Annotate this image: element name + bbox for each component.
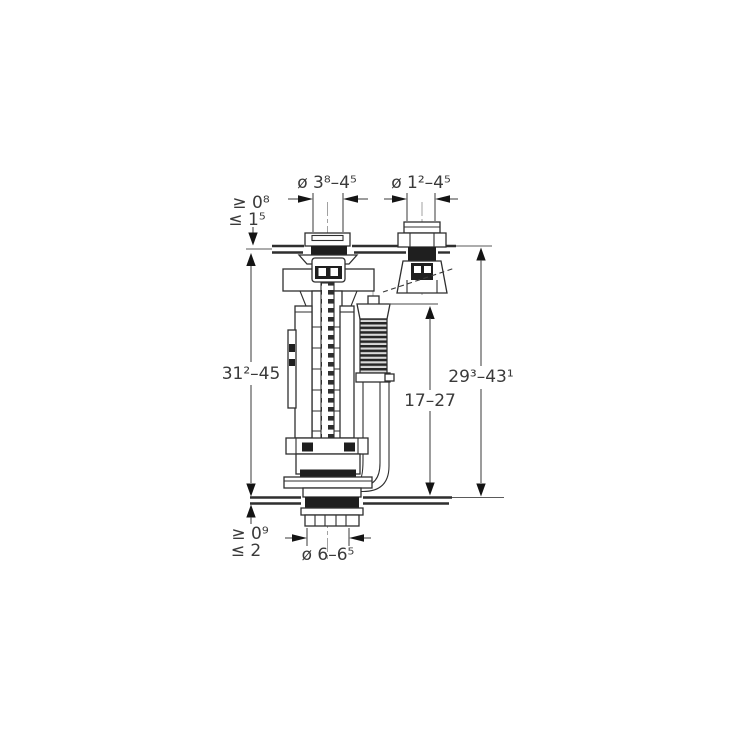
fill-valve-cap-base bbox=[398, 233, 446, 247]
fill-valve-lid-seal bbox=[408, 247, 436, 261]
bellows-top-cap bbox=[357, 304, 390, 319]
flush-valve-rack-tube bbox=[321, 283, 334, 450]
technical-drawing-page: ø 3⁸–4⁵ ø 1²–4⁵ ≥ 0⁸ ≤ 1⁵ bbox=[0, 0, 732, 732]
fill-valve-button-a bbox=[414, 266, 421, 273]
dim-label-lid-thickness-max: ≤ 1⁵ bbox=[228, 210, 265, 230]
dim-lid-thickness: ≥ 0⁸ ≤ 1⁵ bbox=[228, 193, 269, 266]
fill-valve-button-b bbox=[424, 266, 431, 273]
dim-label-flush-valve-height: 31²–45 bbox=[222, 364, 281, 384]
left-latch-upper bbox=[289, 344, 295, 352]
dim-label-fill-valve-height: 29³–43¹ bbox=[448, 367, 513, 387]
cistern-lid bbox=[246, 246, 492, 253]
bellows-corrugations bbox=[360, 319, 387, 373]
fill-valve bbox=[383, 202, 455, 296]
dim-flush-valve-hole: ø 3⁸–4⁵ bbox=[288, 173, 368, 232]
collar-clip-right bbox=[344, 443, 355, 452]
left-latch-lower bbox=[289, 359, 295, 366]
dim-fill-valve-hole: ø 1²–4⁵ bbox=[384, 173, 458, 221]
collar-clip-left bbox=[302, 443, 313, 452]
dim-label-fill-valve-body-height: 17–27 bbox=[404, 391, 456, 411]
dim-fill-valve-body-height: 17–27 bbox=[389, 304, 456, 496]
outlet-seal-ring bbox=[305, 497, 359, 508]
cistern-valve-installation-drawing: ø 3⁸–4⁵ ø 1²–4⁵ ≥ 0⁸ ≤ 1⁵ bbox=[0, 0, 732, 732]
flush-valve-collar bbox=[286, 438, 368, 454]
outlet-nut bbox=[305, 515, 359, 526]
dim-label-base-thickness-max: ≤ 2 bbox=[231, 541, 261, 561]
flush-valve-left-panel bbox=[295, 306, 312, 438]
dim-flush-valve-height: 31²–45 bbox=[222, 266, 281, 497]
outlet-collar bbox=[301, 508, 363, 515]
dim-label-outlet-hole: ø 6–6⁵ bbox=[302, 545, 355, 565]
dim-label-fill-hole: ø 1²–4⁵ bbox=[391, 173, 451, 193]
flush-button-full bbox=[331, 268, 339, 276]
dim-outlet-hole: ø 6–6⁵ bbox=[285, 528, 371, 565]
dim-fill-valve-height: 29³–43¹ bbox=[448, 248, 513, 497]
flush-valve-base-flange bbox=[284, 477, 372, 488]
dim-base-thickness: ≥ 0⁹ ≤ 2 bbox=[231, 505, 269, 562]
flush-valve-left-step bbox=[288, 330, 296, 408]
flush-button-half bbox=[319, 268, 327, 276]
dim-label-flush-hole: ø 3⁸–4⁵ bbox=[297, 173, 357, 193]
flange-neck bbox=[303, 488, 361, 497]
flush-valve-gasket bbox=[300, 470, 356, 477]
bellows-side-nub bbox=[385, 374, 394, 381]
fill-valve-bellows bbox=[356, 288, 394, 492]
outlet-hose-mid bbox=[358, 382, 380, 486]
flush-valve-right-panel bbox=[340, 306, 354, 438]
cistern-base bbox=[250, 498, 504, 504]
